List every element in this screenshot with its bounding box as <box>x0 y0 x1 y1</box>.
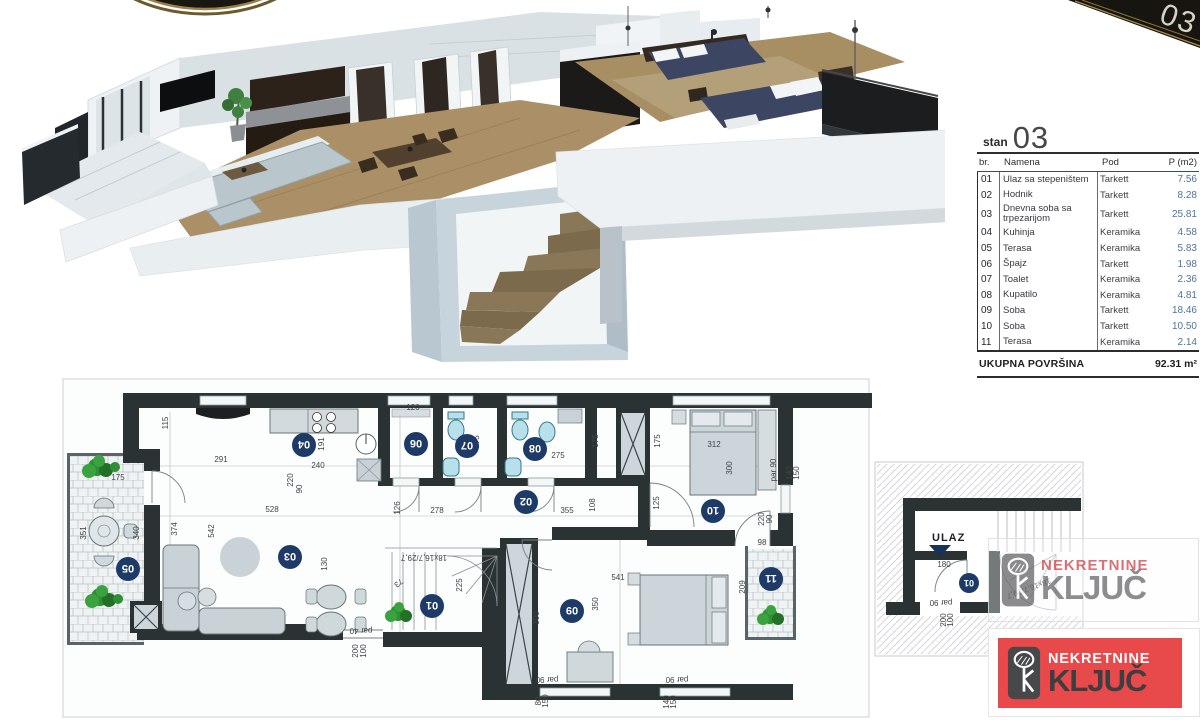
dimension-label: 180 <box>937 560 951 569</box>
dimension-label: 150 <box>541 694 550 708</box>
dimension-label: 209 <box>738 580 747 594</box>
table-row: 11TerasaKeramika2.14 <box>978 334 1199 350</box>
bedroom-block-3d <box>556 32 945 324</box>
svg-text:09: 09 <box>566 604 578 616</box>
dimension-label: 225 <box>455 578 464 592</box>
room-badge: 02 <box>514 490 538 514</box>
svg-text:01: 01 <box>964 578 974 588</box>
room-badge: 08 <box>523 437 547 461</box>
svg-text:10: 10 <box>707 504 719 516</box>
dimension-label: 312 <box>707 440 721 449</box>
dimension-label: 291 <box>214 455 228 464</box>
watermark-logo: NEKRETNINE KLJUČ <box>988 538 1199 622</box>
svg-text:05: 05 <box>122 562 134 574</box>
table-row: 08KupatiloKeramika4.81 <box>978 288 1199 304</box>
unit-table-rows: 01Ulaz sa stepeništemTarkett7.5602Hodnik… <box>977 172 1199 350</box>
dimension-label: 125 <box>652 496 661 510</box>
svg-text:01: 01 <box>426 599 438 611</box>
dimension-label: 528 <box>265 505 279 514</box>
room-badge: 11 <box>759 567 783 591</box>
svg-text:02: 02 <box>520 495 532 507</box>
unit-number: 03 <box>1013 123 1049 152</box>
dimension-label: 100 <box>359 644 368 658</box>
key-icon <box>1001 552 1035 608</box>
svg-text:04: 04 <box>297 438 310 450</box>
apartment-3d-render <box>15 5 945 367</box>
dimension-label: 541 <box>611 573 625 582</box>
dimension-label: 90 <box>765 514 774 523</box>
dimension-label: 542 <box>207 524 216 538</box>
dimension-label: 275 <box>551 451 565 460</box>
room-badge: 07 <box>455 434 479 458</box>
table-footer: UKUPNA POVRŠINA 92.31 m² <box>977 350 1199 378</box>
table-row: 03Dnevna soba sa trpezarijomTarkett25.81 <box>978 203 1199 225</box>
dimension-label: 351 <box>79 526 88 540</box>
dimension-label: 18x16,7/29,7 <box>400 553 447 562</box>
dimension-label: 120 <box>406 403 420 412</box>
dimension-label: par 90 <box>665 675 688 684</box>
table-row: 05TerasaKeramika5.83 <box>978 241 1199 257</box>
room-badge: 10 <box>701 499 725 523</box>
dimension-label: 300 <box>532 611 541 625</box>
col-p: P (m2) <box>1155 157 1199 168</box>
agency-line2: KLJUČ <box>1048 667 1150 694</box>
room-badge: 09 <box>560 599 584 623</box>
room-badge: 03 <box>278 545 302 569</box>
dimension-label: 355 <box>560 506 574 515</box>
room-badge: 01 <box>959 573 979 593</box>
entrance-room-badge: 01 <box>959 573 979 593</box>
dimension-label: 115 <box>161 416 170 429</box>
terrace-11 <box>745 546 796 640</box>
room-badge: 04 <box>292 433 316 457</box>
corner-unit-ribbon: 03 <box>1040 0 1200 80</box>
room-badge: 05 <box>116 557 140 581</box>
table-header: br. Namena Pod P (m2) <box>977 154 1199 172</box>
total-label: UKUPNA POVRŠINA <box>977 358 1084 370</box>
dimension-label: 350 <box>591 597 600 611</box>
dimension-label: 150 <box>669 695 678 709</box>
dimension-label: 191 <box>317 437 326 451</box>
unit-info-table: stan 03 br. Namena Pod P (m2) 01Ulaz sa … <box>977 116 1199 380</box>
svg-text:07: 07 <box>461 439 473 451</box>
table-row: 06ŠpajzTarkett1.98 <box>978 256 1199 272</box>
key-icon <box>1007 646 1041 700</box>
dimension-label: 374 <box>170 522 179 536</box>
bath-counter <box>558 409 582 423</box>
svg-text:11: 11 <box>765 572 777 584</box>
dimension-label: 108 <box>588 498 597 512</box>
dimension-label: par 90 <box>769 458 778 481</box>
dimension-label: 175 <box>653 434 662 448</box>
dimension-label: 340 <box>132 526 141 540</box>
col-namena: Namena <box>1002 157 1097 168</box>
dimension-label: par 90 <box>929 598 952 607</box>
table-row: 07ToaletKeramika2.36 <box>978 272 1199 288</box>
table-row: 01Ulaz sa stepeništemTarkett7.56 <box>978 172 1199 188</box>
col-pod: Pod <box>1100 157 1152 168</box>
unit-label: stan <box>983 135 1008 152</box>
listing-sheet: 03 <box>0 0 1200 720</box>
svg-text:08: 08 <box>529 442 541 454</box>
floor-plan-2d: 1152912401911201351752751751751752209052… <box>62 378 872 720</box>
table-row: 10SobaTarkett10.50 <box>978 319 1199 335</box>
table-row: 02HodnikTarkett8.28 <box>978 188 1199 204</box>
ulaz-label: ULAZ <box>932 532 965 544</box>
dimension-label: 200 <box>351 644 360 658</box>
dimension-label: 200 <box>939 613 948 627</box>
dimension-label: 126 <box>393 501 402 515</box>
dimension-label: 175 <box>111 473 125 482</box>
dimension-label: par 90 <box>535 675 558 684</box>
dimension-label: 150 <box>792 466 801 480</box>
col-br: br. <box>977 157 999 168</box>
dimension-label: 240 <box>311 461 325 470</box>
dimension-label: 300 <box>725 461 734 475</box>
svg-text:03: 03 <box>284 550 296 562</box>
total-value: 92.31 m² <box>1155 358 1199 370</box>
dimension-label: par 40 <box>349 626 372 635</box>
room-badge: 06 <box>404 432 428 456</box>
dimension-label: 130 <box>320 557 329 571</box>
unit-title: stan 03 <box>977 116 1199 154</box>
dimension-label: 90 <box>295 484 304 493</box>
dimension-label: 278 <box>430 506 444 515</box>
agency-logo-panel: NEKRETNINE KLJUČ <box>988 628 1200 717</box>
table-row: 09SobaTarkett18.46 <box>978 303 1199 319</box>
dimension-label: 98 <box>758 538 767 547</box>
dimension-label: 220 <box>286 473 295 487</box>
table-row: 04KuhinjaKeramika4.58 <box>978 225 1199 241</box>
watermark-line2: KLJUČ <box>1041 574 1149 602</box>
agency-logo: NEKRETNINE KLJUČ <box>998 638 1182 708</box>
dimension-label: 175 <box>591 434 600 448</box>
room-badge: 01 <box>420 594 444 618</box>
svg-text:06: 06 <box>410 437 422 449</box>
